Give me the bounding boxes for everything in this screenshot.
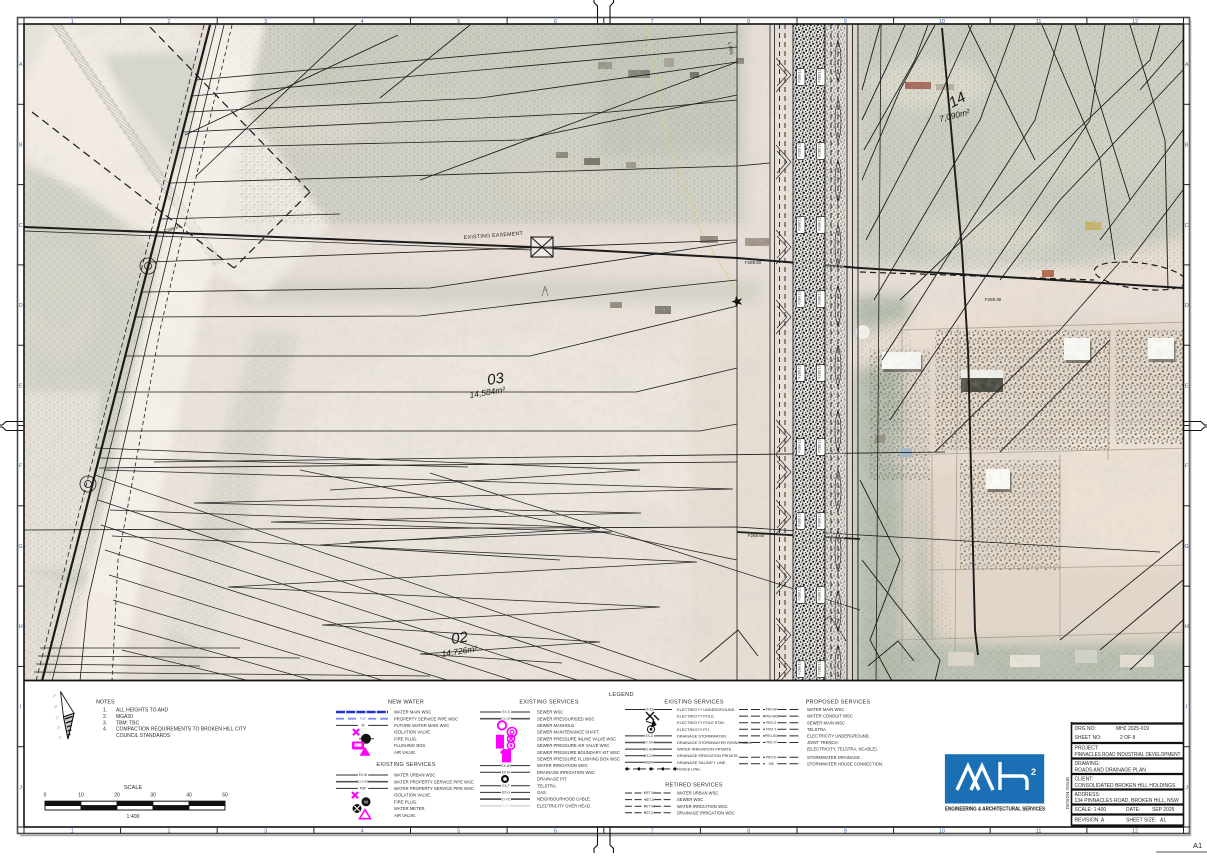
svg-text:DRAINAGE IRRIGATION PRIVATE.: DRAINAGE IRRIGATION PRIVATE. [677,753,739,758]
svg-text:WATER IRRIGATION WSC: WATER IRRIGATION WSC [537,763,588,768]
svg-text:PSP: PSP [360,717,366,721]
svg-text:WATER CONDUIT WSC: WATER CONDUIT WSC [807,714,853,719]
svg-text:SEWER MAIN WSC: SEWER MAIN WSC [807,720,845,725]
svg-text:EX-PSP: EX-PSP [357,780,369,784]
svg-text:WATER PROPERTY SERVICE PIPE WS: WATER PROPERTY SERVICE PIPE WSC [394,779,474,784]
svg-text:F289.60: F289.60 [745,260,762,265]
svg-text:EX-SP: EX-SP [501,717,511,721]
svg-text:F289.13: F289.13 [798,69,802,82]
svg-text:G: G [19,544,23,550]
svg-text:TELSTRA.: TELSTRA. [807,727,827,732]
svg-text:7: 7 [651,19,654,25]
svg-text:LEGEND: LEGEND [609,692,634,698]
svg-text:COUNCIL STANDARDS: COUNCIL STANDARDS [116,733,171,739]
svg-text:ELECTRICITY UNDERGROUND.: ELECTRICITY UNDERGROUND. [677,707,736,712]
svg-text:DATE:: DATE: [1126,807,1140,813]
svg-text:E: E [19,383,23,389]
svg-text:SEWER WSC: SEWER WSC [677,797,703,802]
svg-text:WATER URBAN WSC: WATER URBAN WSC [677,791,718,796]
svg-text:PROPERTY SERVICE PIPE WSC: PROPERTY SERVICE PIPE WSC [394,716,458,721]
svg-text:DRAINAGE SALINITY LINE.: DRAINAGE SALINITY LINE. [677,760,726,765]
svg-text:3.: 3. [103,720,107,726]
svg-text:EX-WI: EX-WI [501,764,510,768]
svg-text:F289.13: F289.13 [818,587,822,600]
svg-text:G: G [1185,544,1189,550]
svg-text:EX-NC: EX-NC [501,797,512,801]
svg-text:SEWER PRESSURE INLINE VALVE WS: SEWER PRESSURE INLINE VALVE WSC [537,736,616,741]
svg-text:TELSTRA.: TELSTRA. [537,783,557,788]
svg-text:1: 1 [71,19,74,25]
svg-text:DRAINAGE PIT.: DRAINAGE PIT. [537,777,567,782]
svg-text:E: E [1185,383,1189,389]
svg-text:NEW WATER: NEW WATER [388,700,424,706]
svg-text:NOTES: NOTES [96,700,115,706]
svg-text:FIRE PLUG.: FIRE PLUG. [394,799,417,804]
svg-text:PROPOSED SERVICES: PROPOSED SERVICES [806,700,871,706]
svg-text:2: 2 [167,19,170,25]
svg-text:EX-EU: EX-EU [645,708,655,712]
svg-text:20: 20 [114,793,120,799]
svg-text:EXISTING SERVICES: EXISTING SERVICES [664,700,723,706]
svg-text:F289.13: F289.13 [818,69,822,82]
svg-text:MGA20: MGA20 [116,714,133,720]
svg-text:10: 10 [939,19,945,25]
svg-text:PRO-D: PRO-D [766,755,777,759]
svg-text:PRO-WC: PRO-WC [765,714,779,718]
svg-text:1:400: 1:400 [127,814,140,820]
svg-text:WATER MAIN WSC: WATER MAIN WSC [394,710,431,715]
svg-text:8: 8 [747,829,750,835]
svg-text:ELECTRICITY UNDERGROUND.: ELECTRICITY UNDERGROUND. [807,734,870,739]
svg-text:F289.13: F289.13 [798,439,802,452]
svg-text:10: 10 [78,793,84,799]
svg-text:F289.13: F289.13 [798,365,802,378]
svg-text:J: J [1185,785,1188,791]
svg-text:DRAINAGE IRRIGATION WSC: DRAINAGE IRRIGATION WSC [677,810,735,815]
svg-text:1.: 1. [103,708,107,714]
svg-text:EXISTING SERVICES: EXISTING SERVICES [376,762,435,768]
svg-text:3: 3 [264,829,267,835]
svg-text:DRAINAGE IRRIGATION WSC: DRAINAGE IRRIGATION WSC [537,770,595,775]
svg-text:DESIGN ISSUE: DESIGN ISSUE [1065,777,1070,810]
svg-text:MH2 2025-019: MH2 2025-019 [1116,726,1149,732]
svg-text:8: 8 [747,19,750,25]
svg-text:EXISTING SERVICES: EXISTING SERVICES [519,700,578,706]
svg-text:ALL HEIGHTS TO AHD: ALL HEIGHTS TO AHD [116,708,169,714]
svg-text:DRAINAGE STORMWATER.: DRAINAGE STORMWATER. [677,733,727,738]
svg-text:J: J [19,785,22,791]
svg-text:FUTURE WATER MAIN WSC: FUTURE WATER MAIN WSC [394,723,449,728]
svg-text:RETIRED SERVICES: RETIRED SERVICES [665,783,723,789]
svg-text:EX-EOH: EX-EOH [500,804,513,808]
svg-text:H: H [19,624,23,630]
svg-text:F288.39: F288.39 [985,297,1002,302]
svg-text:D: D [1185,303,1189,309]
svg-text:DRAWING:: DRAWING: [1075,761,1100,767]
svg-text:ELECTRICITY POLE.: ELECTRICITY POLE. [677,714,715,719]
svg-text:0: 0 [44,793,47,799]
svg-text:F289.13: F289.13 [798,513,802,526]
svg-text:F289.13: F289.13 [818,513,822,526]
svg-text:1: 1 [71,829,74,835]
svg-text:WATER MAIN WSC: WATER MAIN WSC [807,707,844,712]
svg-text:F289.13: F289.13 [818,217,822,230]
svg-text:5: 5 [457,19,460,25]
svg-text:WATER IRRIGATION WSC: WATER IRRIGATION WSC [677,804,728,809]
svg-text:SW: SW [769,762,774,766]
svg-text:D: D [19,303,23,309]
svg-text:PROJECT:: PROJECT: [1075,746,1099,752]
svg-text:SEWER WSC: SEWER WSC [537,710,563,715]
svg-text:WATER IRRIGATION PRIVATE.: WATER IRRIGATION PRIVATE. [677,747,732,752]
svg-text:4: 4 [361,829,364,835]
svg-text:F289.13: F289.13 [818,365,822,378]
svg-text:30: 30 [150,793,156,799]
svg-text:EX-DIP: EX-DIP [644,754,655,758]
svg-text:40: 40 [186,793,192,799]
svg-text:SEWER PRESSURISED WSC: SEWER PRESSURISED WSC [537,716,594,721]
svg-text:FENCE LINE.: FENCE LINE. [677,766,701,771]
svg-text:PRO-JT: PRO-JT [765,741,777,745]
svg-text:F288.60: F288.60 [748,533,765,538]
svg-text:F289.13: F289.13 [818,439,822,452]
svg-text:PRO-S: PRO-S [766,721,776,725]
svg-text:EX-G: EX-G [502,791,510,795]
svg-text:3: 3 [264,19,267,25]
svg-text:ROADS AND DRAINAGE PLAN: ROADS AND DRAINAGE PLAN [1075,768,1147,774]
svg-text:RET-S: RET-S [645,798,654,802]
svg-text:STORMWATER DRAINAGE.: STORMWATER DRAINAGE. [807,755,861,760]
svg-text:STORMWATER HOUSE CONNECTION.: STORMWATER HOUSE CONNECTION. [807,761,883,766]
svg-text:H: H [1185,624,1189,630]
svg-text:FLUSHING BOX.: FLUSHING BOX. [394,743,426,748]
svg-text:2 OF 8: 2 OF 8 [1120,735,1136,741]
svg-text:12: 12 [1132,19,1138,25]
svg-text:AIR VALVE.: AIR VALVE. [394,813,416,818]
svg-text:6: 6 [554,829,557,835]
svg-text:9: 9 [844,829,847,835]
svg-text:F289.13: F289.13 [798,661,802,674]
svg-text:F289.13: F289.13 [818,291,822,304]
svg-text:F289.13: F289.13 [798,291,802,304]
svg-text:CLIENT:: CLIENT: [1075,777,1094,783]
svg-text:5: 5 [457,829,460,835]
svg-text:EX-W: EX-W [359,773,367,777]
svg-text:EX-DRA: EX-DRA [643,741,656,745]
svg-text:SEWER PRESSURE BOUNDARY KIT W: SEWER PRESSURE BOUNDARY KIT WSC [537,750,620,755]
svg-text:PINNACLES ROAD INDUSTRIAL DEVE: PINNACLES ROAD INDUSTRIAL DEVELOPMENT [1075,752,1181,758]
svg-text:PRO-T: PRO-T [766,728,776,732]
svg-text:SHEET SIZE:: SHEET SIZE: [1126,818,1156,824]
svg-text:F289.13: F289.13 [818,143,822,156]
svg-text:TBM: TBC: TBM: TBC [116,720,140,726]
svg-text:DRG NO:: DRG NO: [1075,726,1096,732]
svg-text:SEP 2025: SEP 2025 [1152,807,1175,813]
svg-text:WATER PROPERTY SERVICE PIPE WS: WATER PROPERTY SERVICE PIPE WSC [394,786,474,791]
svg-text:A1: A1 [1193,841,1202,850]
svg-text:4.: 4. [103,727,107,733]
svg-text:EX-DI: EX-DI [502,771,511,775]
svg-text:EX-D: EX-D [646,734,654,738]
svg-text:(ELECTRICITY, TELSTRA, NCABLE): (ELECTRICITY, TELSTRA, NCABLE). [807,747,878,752]
svg-text:RET-W: RET-W [644,791,654,795]
svg-text:11: 11 [1036,19,1042,25]
svg-text:PSP: PSP [360,787,366,791]
svg-text:ISOLATION VALVE.: ISOLATION VALVE. [394,730,431,735]
svg-text:ELECTRICITY OVER HEAD.: ELECTRICITY OVER HEAD. [537,803,591,808]
svg-text:PRO-W: PRO-W [766,708,777,712]
svg-text:4: 4 [361,19,364,25]
svg-text:DASW: DASW [645,761,655,765]
svg-text:12: 12 [1132,829,1138,835]
svg-text:SEWER PRESSURE FLUSHING BOX W: SEWER PRESSURE FLUSHING BOX WSC [537,757,620,762]
svg-text:50: 50 [222,793,228,799]
svg-text:FIRE PLUG.: FIRE PLUG. [394,736,417,741]
svg-text:ENGINEERING & ARCHITECTURAL SE: ENGINEERING & ARCHITECTURAL SERVICES [945,807,1045,813]
svg-text:COMPACTION REQUIREMENTS TO BRO: COMPACTION REQUIREMENTS TO BROKEN HILL C… [116,727,247,733]
svg-text:C: C [19,223,23,229]
svg-text:C: C [1185,223,1189,229]
svg-text:GAS.: GAS. [537,790,547,795]
svg-text:REVISION: A: REVISION: A [1075,818,1105,824]
svg-text:2: 2 [167,829,170,835]
svg-text:10: 10 [939,829,945,835]
svg-text:EX-S: EX-S [502,710,509,714]
svg-text:WATER METER.: WATER METER. [394,806,426,811]
svg-text:F289.13: F289.13 [798,587,802,600]
svg-text:A: A [1185,62,1189,68]
svg-text:9: 9 [844,19,847,25]
svg-text:ELECTRICITY PIT.: ELECTRICITY PIT. [677,727,710,732]
svg-text:SCALE: 1:400: SCALE: 1:400 [1075,807,1107,813]
svg-text:SCALE: SCALE [124,785,143,791]
svg-text:F289.13: F289.13 [798,217,802,230]
svg-text:B: B [1185,142,1189,148]
svg-text:ISOLATION VALVE.: ISOLATION VALVE. [394,793,431,798]
svg-text:ELECTRICITY POLE STAY.: ELECTRICITY POLE STAY. [677,720,725,725]
svg-text:W: W [361,724,364,728]
svg-text:EX-WIP: EX-WIP [644,747,655,751]
svg-text:F289.13: F289.13 [798,143,802,156]
svg-text:RET-DI: RET-DI [644,811,655,815]
svg-text:SEWER PRESSURE AIR VALVE WSC: SEWER PRESSURE AIR VALVE WSC [537,743,609,748]
svg-text:SEWER MANHOLE.: SEWER MANHOLE. [537,723,575,728]
svg-text:2: 2 [1031,767,1036,777]
svg-text:F289.13: F289.13 [818,661,822,674]
svg-text:A: A [19,62,23,68]
svg-text:RET-WI: RET-WI [644,804,655,808]
svg-text:AIR VALVE.: AIR VALVE. [394,750,416,755]
svg-text:134 PINNACLES ROAD, BROKEN HIL: 134 PINNACLES ROAD, BROKEN HILL, NSW [1075,798,1179,804]
svg-text:SEWER MAINTENANCE SHAFT.: SEWER MAINTENANCE SHAFT. [537,730,600,735]
svg-text:2.: 2. [103,714,107,720]
svg-text:PRO-EU: PRO-EU [765,734,778,738]
svg-text:11: 11 [1036,829,1042,835]
svg-text:7: 7 [651,829,654,835]
svg-text:EX-T: EX-T [502,784,509,788]
svg-text:NEIGHBOURHOOD CABLE.: NEIGHBOURHOOD CABLE. [537,797,591,802]
svg-text:WATER URBAN WSC: WATER URBAN WSC [394,773,435,778]
svg-text:JOINT TRENCH.: JOINT TRENCH. [807,740,839,745]
svg-text:B: B [19,142,23,148]
svg-text:CONSOLIDATED BROKEN HILL HOLDI: CONSOLIDATED BROKEN HILL HOLDINGS [1075,783,1177,789]
svg-text:A1: A1 [1160,818,1166,824]
svg-text:SHEET NO:: SHEET NO: [1075,735,1102,741]
svg-text:6: 6 [554,19,557,25]
